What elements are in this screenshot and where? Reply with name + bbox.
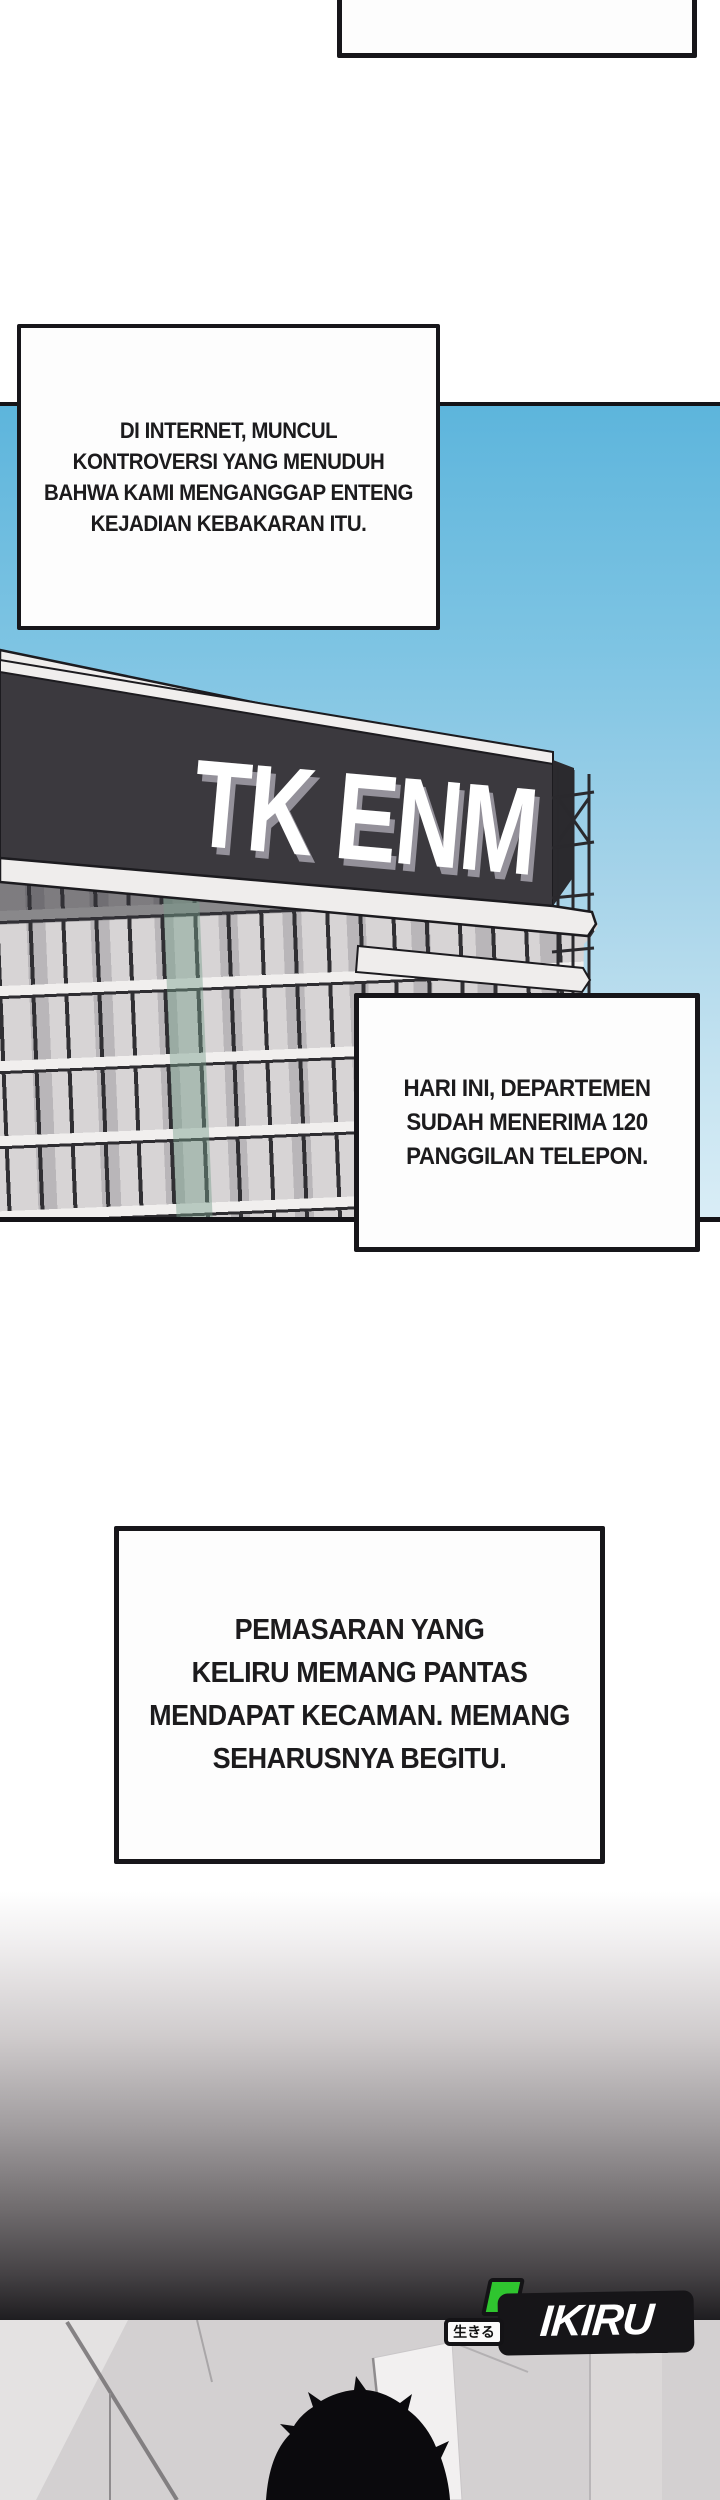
narration-line: DI INTERNET, MUNCUL [36,415,422,446]
logo-jp-box: 生きる [444,2318,504,2346]
narration-box-1: DI INTERNET, MUNCUL KONTROVERSI YANG MEN… [17,324,440,630]
narration-line: HARI INI, DEPARTEMEN [371,1072,683,1106]
ikiru-logo: IKIRU 生きる [440,2272,696,2364]
narration-box-partial [337,0,697,58]
narration-text-1: DI INTERNET, MUNCUL KONTROVERSI YANG MEN… [36,415,422,539]
narration-line: KELIRU MEMANG PANTAS [136,1652,583,1695]
narration-text-3: PEMASARAN YANG KELIRU MEMANG PANTAS MEND… [136,1609,583,1781]
narration-line: SEHARUSNYA BEGITU. [136,1738,583,1781]
narration-line: PANGGILAN TELEPON. [371,1140,683,1174]
narration-line: SUDAH MENERIMA 120 [371,1106,683,1140]
narration-line: BAHWA KAMI MENGANGGAP ENTENG [36,477,422,508]
narration-line: KONTROVERSI YANG MENUDUH [36,446,422,477]
comic-page: TK ENM TK ENM DI INTERNET, MUNCUL KONTRO… [0,0,720,2500]
narration-text-2: HARI INI, DEPARTEMEN SUDAH MENERIMA 120 … [371,1072,683,1174]
logo-wordmark: IKIRU [537,2295,654,2351]
logo-jp-text: 生きる [453,2325,495,2339]
narration-line: PEMASARAN YANG [136,1609,583,1652]
fade-to-dark-band [0,1864,720,2320]
narration-line: MENDAPAT KECAMAN. MEMANG [136,1695,583,1738]
narration-box-3: PEMASARAN YANG KELIRU MEMANG PANTAS MEND… [114,1526,605,1864]
narration-box-2: HARI INI, DEPARTEMEN SUDAH MENERIMA 120 … [354,993,700,1252]
logo-wordmark-box: IKIRU [497,2290,694,2355]
narration-line: KEJADIAN KEBAKARAN ITU. [36,508,422,539]
